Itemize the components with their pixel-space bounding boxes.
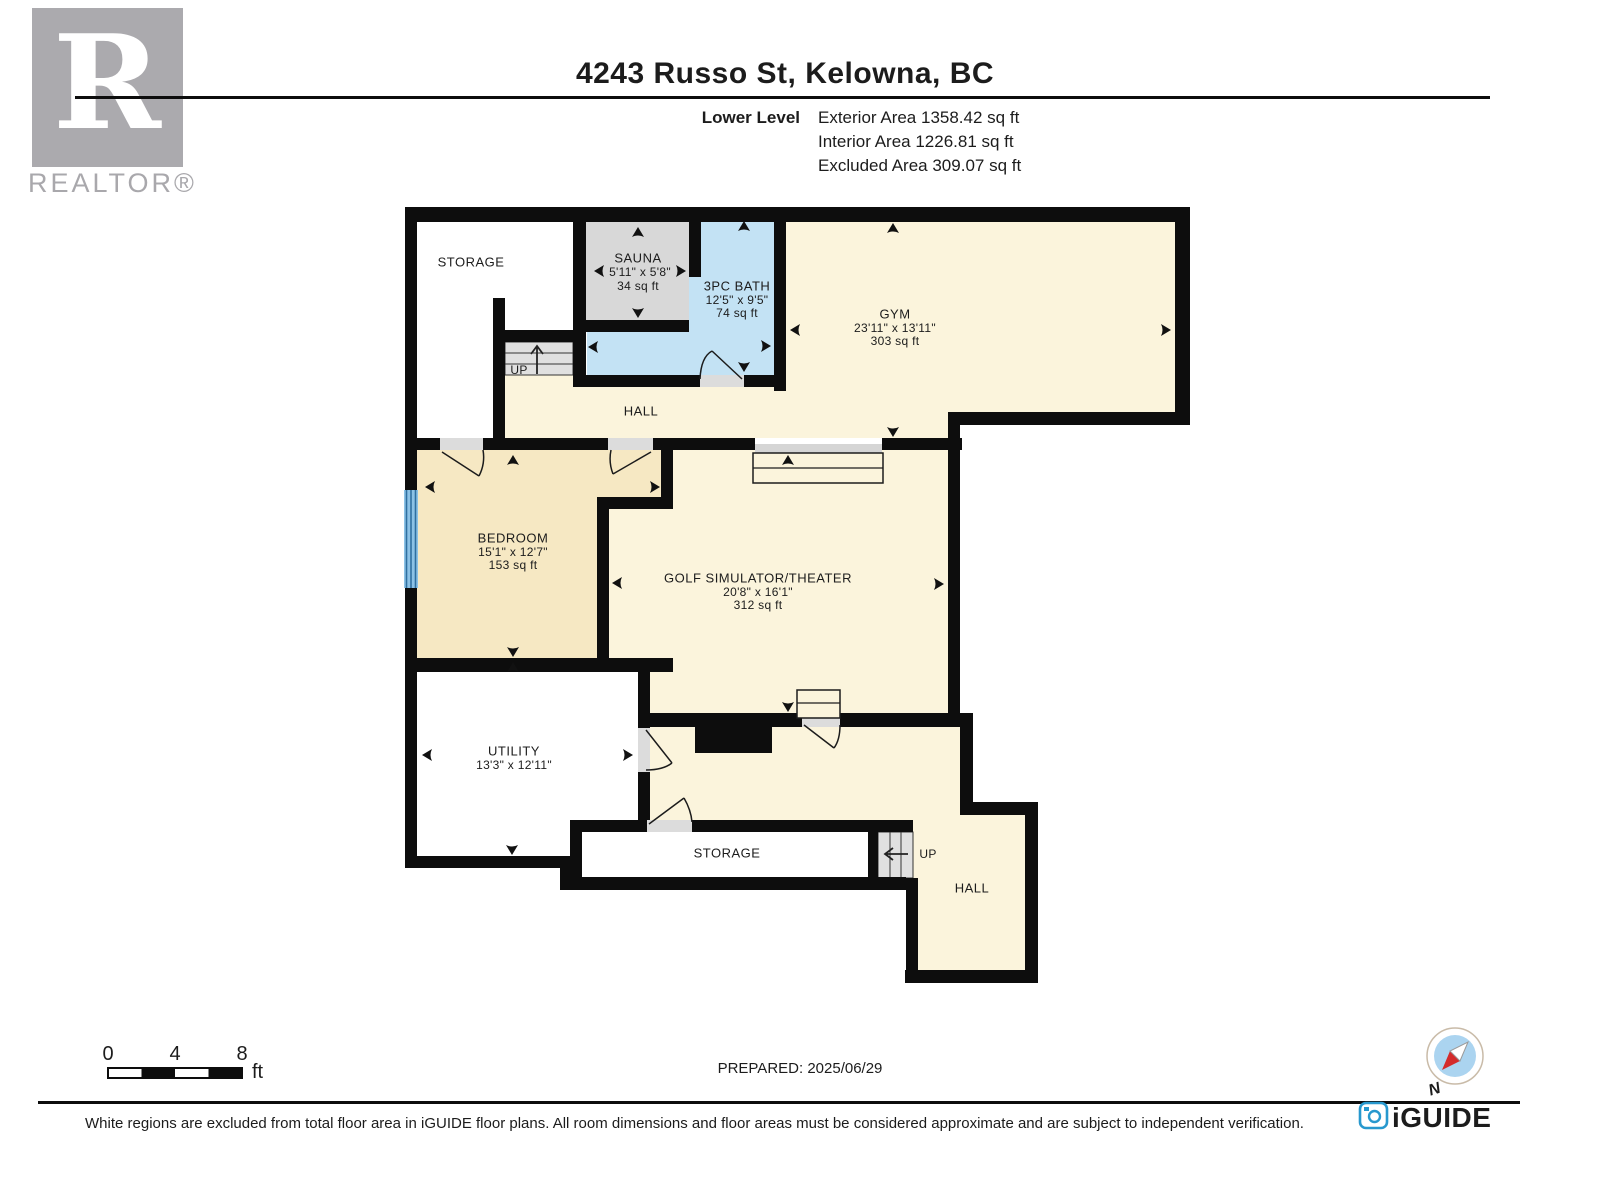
chimney-block [695,723,772,753]
wall [840,713,960,727]
prepared-date: PREPARED: 2025/06/29 [718,1060,883,1077]
room-label-hall-lower: HALL [955,880,990,895]
wall [493,330,573,342]
room-dims-utility: 13'3" x 12'11" [476,758,552,772]
interior-area: Interior Area 1226.81 sq ft [818,132,1014,151]
page-title: 4243 Russo St, Kelowna, BC [576,57,994,90]
wall [1025,802,1038,983]
realtor-logo-wordmark: REALTOR® [28,168,197,198]
wall [960,713,973,815]
wall [405,438,440,450]
door-threshold [440,438,483,450]
scale-bar: 0 4 8 ft [102,1043,263,1083]
room-label-storage-upper: STORAGE [438,254,505,269]
room-dims-golf: 20'8" x 16'1" [723,585,793,599]
compass-north-label: N [1426,1080,1443,1100]
title-divider [75,96,1490,99]
room-dims-gym: 23'11" x 13'11" [854,321,936,335]
excluded-area: Excluded Area 309.07 sq ft [818,156,1021,175]
floor-plan-canvas: R REALTOR® 4243 Russo St, Kelowna, BC Lo… [0,0,1600,1200]
window [404,490,418,588]
room-label-sauna: SAUNA [614,250,661,265]
room-label-hall-upper: HALL [624,403,659,418]
wall [405,207,1190,222]
level-label: Lower Level [702,108,800,127]
wall [573,375,700,387]
room-area-sauna: 34 sq ft [617,279,659,293]
wall [638,772,650,820]
room-area-gym: 303 sq ft [871,334,920,348]
scale-segment [209,1068,243,1078]
wall [1175,207,1190,425]
wall [948,445,960,727]
floor-plan-page: R REALTOR® 4243 Russo St, Kelowna, BC Lo… [0,0,1600,1200]
room-area-bedroom: 153 sq ft [489,558,538,572]
disclaimer-text: White regions are excluded from total fl… [85,1115,1304,1132]
iguide-wordmark: iGUIDE [1392,1102,1491,1133]
wall [661,450,673,509]
wall [405,658,673,672]
scale-tick-4: 4 [169,1043,180,1065]
wall [597,497,609,658]
scale-tick-8: 8 [236,1043,247,1065]
wall [560,877,906,890]
realtor-logo: R REALTOR® [28,6,197,198]
scale-segment [142,1068,176,1078]
room-label-gym: GYM [879,306,910,321]
iguide-camera-dot [1364,1107,1369,1111]
wall [774,207,786,391]
room-dims-sauna: 5'11" x 5'8" [609,265,671,279]
wall [906,878,918,983]
room-label-storage-lower: STORAGE [694,845,761,860]
wall [405,588,417,868]
room-dims-bedroom: 15'1" x 12'7" [478,545,548,559]
room-area-bath: 74 sq ft [716,306,758,320]
wall [905,970,1038,983]
door-threshold [700,375,744,387]
iguide-camera-icon [1360,1103,1387,1128]
niche [797,690,840,718]
room-label-bedroom: BEDROOM [478,530,549,545]
wall [692,820,913,832]
wall [868,832,878,878]
room-label-bath: 3PC BATH [704,278,771,293]
wall [573,320,689,332]
scale-tick-0: 0 [102,1043,113,1065]
footer-divider [38,1101,1520,1104]
stairs-lower-box [878,832,913,878]
exterior-area: Exterior Area 1358.42 sq ft [818,108,1020,127]
wall [573,207,586,387]
wall [744,375,786,387]
wall [653,438,755,450]
gym-floor [786,222,1175,438]
room-label-golf: GOLF SIMULATOR/THEATER [664,570,852,585]
stairs-lower-label: UP [919,847,936,861]
iguide-logo: iGUIDE [1360,1102,1491,1133]
realtor-logo-letter: R [53,6,162,159]
wall [956,412,1190,425]
door-threshold [608,438,653,450]
room-area-golf: 312 sq ft [734,598,783,612]
wall [405,856,572,868]
compass-icon: N [1426,1028,1483,1100]
iguide-camera-lens [1369,1111,1380,1122]
stairs-upper-label: UP [510,363,527,377]
room-dims-bath: 12'5" x 9'5" [706,293,769,307]
door-threshold [638,728,650,772]
door-threshold [647,820,692,832]
wall-opening [755,444,882,453]
stairs-upper: UP [505,342,573,377]
wall [689,219,701,277]
wall [493,298,505,450]
scale-unit: ft [252,1061,264,1083]
room-label-utility: UTILITY [488,743,540,758]
